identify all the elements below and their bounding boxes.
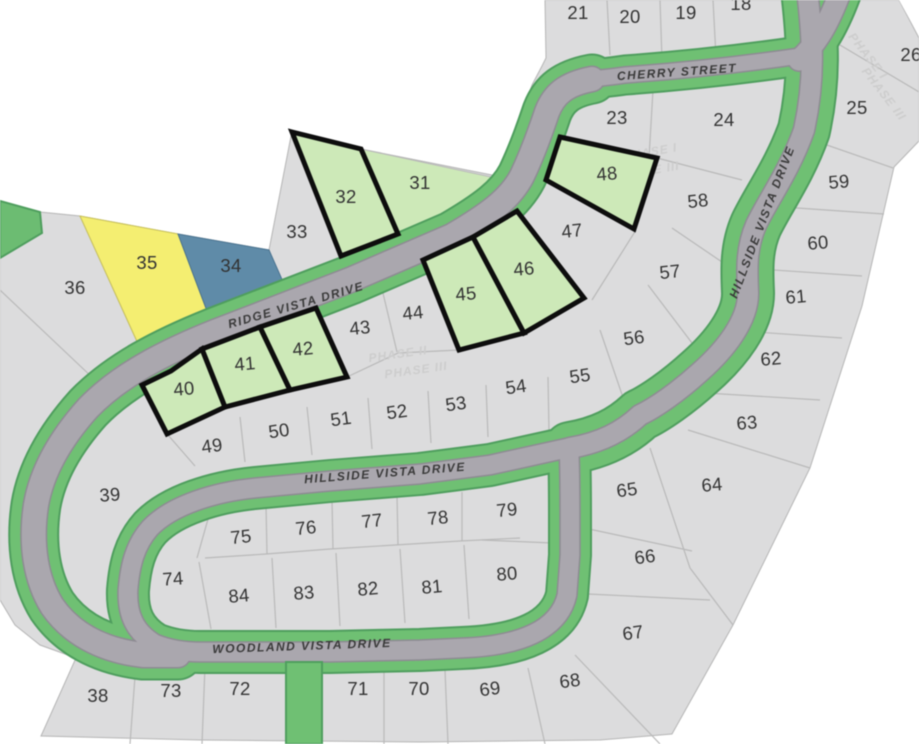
svg-text:38: 38: [87, 685, 108, 706]
svg-text:72: 72: [229, 678, 250, 699]
svg-text:79: 79: [495, 498, 518, 521]
svg-text:68: 68: [558, 669, 582, 693]
svg-text:39: 39: [99, 483, 122, 505]
svg-text:80: 80: [495, 562, 518, 585]
svg-text:32: 32: [335, 186, 356, 207]
svg-text:47: 47: [560, 219, 583, 242]
svg-text:33: 33: [286, 221, 307, 242]
svg-text:75: 75: [229, 525, 252, 548]
svg-text:62: 62: [759, 347, 782, 370]
svg-text:71: 71: [347, 678, 368, 699]
svg-text:67: 67: [621, 621, 645, 645]
svg-text:65: 65: [615, 478, 639, 502]
svg-text:59: 59: [827, 170, 850, 193]
svg-text:45: 45: [454, 282, 477, 305]
svg-text:81: 81: [420, 575, 443, 598]
svg-text:57: 57: [658, 260, 681, 283]
svg-text:25: 25: [846, 97, 867, 118]
svg-text:19: 19: [675, 2, 696, 23]
svg-text:74: 74: [162, 567, 185, 589]
svg-text:83: 83: [292, 581, 315, 604]
svg-text:58: 58: [686, 189, 709, 212]
svg-text:50: 50: [267, 419, 291, 443]
svg-text:63: 63: [735, 411, 758, 434]
svg-text:26: 26: [900, 44, 919, 65]
svg-text:49: 49: [200, 434, 224, 458]
svg-text:51: 51: [329, 407, 353, 431]
svg-text:42: 42: [291, 337, 314, 360]
svg-text:78: 78: [426, 506, 449, 529]
svg-text:54: 54: [504, 375, 528, 399]
svg-text:36: 36: [64, 277, 85, 298]
svg-text:52: 52: [385, 400, 409, 424]
svg-text:53: 53: [444, 392, 468, 416]
svg-text:61: 61: [784, 285, 807, 308]
svg-text:56: 56: [622, 326, 646, 350]
svg-text:21: 21: [567, 2, 588, 23]
svg-text:66: 66: [633, 545, 657, 569]
svg-text:84: 84: [227, 584, 250, 607]
svg-text:43: 43: [348, 316, 371, 339]
svg-text:44: 44: [401, 301, 424, 324]
svg-text:82: 82: [356, 577, 379, 600]
svg-text:69: 69: [478, 677, 502, 701]
svg-text:77: 77: [360, 509, 383, 532]
svg-text:55: 55: [568, 364, 592, 388]
svg-text:76: 76: [294, 516, 317, 539]
svg-text:40: 40: [172, 377, 195, 400]
svg-text:18: 18: [730, 0, 751, 14]
svg-text:34: 34: [220, 255, 241, 276]
svg-text:73: 73: [160, 680, 181, 701]
svg-text:24: 24: [713, 109, 734, 130]
svg-text:64: 64: [700, 473, 723, 496]
svg-text:60: 60: [806, 231, 829, 254]
svg-text:31: 31: [409, 172, 430, 193]
svg-text:46: 46: [512, 257, 535, 280]
svg-text:20: 20: [619, 6, 640, 27]
svg-text:48: 48: [595, 162, 618, 185]
svg-text:35: 35: [136, 252, 157, 273]
svg-text:41: 41: [233, 352, 256, 375]
svg-text:23: 23: [606, 107, 627, 128]
svg-text:70: 70: [408, 678, 429, 699]
